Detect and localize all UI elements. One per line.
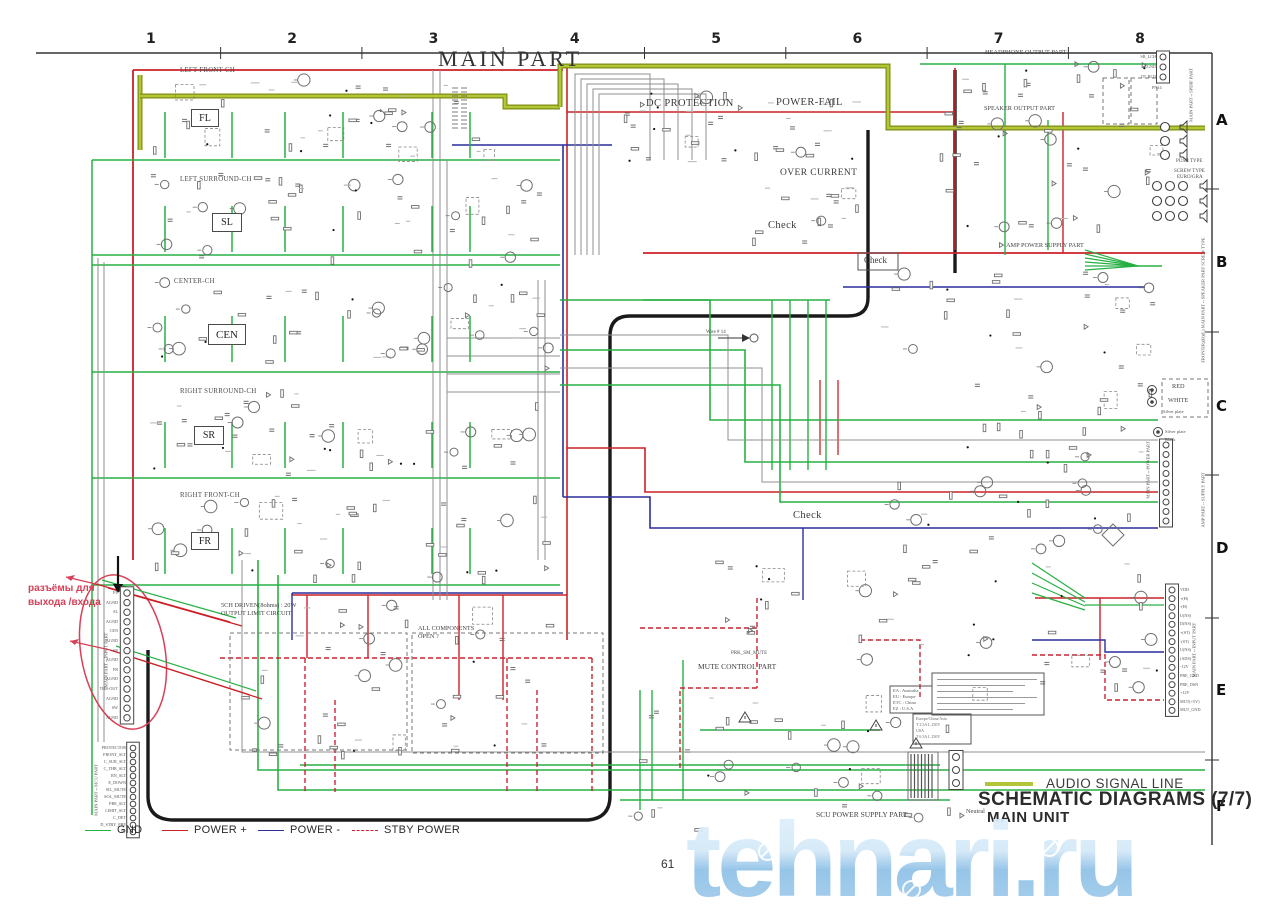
pin-label: THR-OUT xyxy=(100,687,118,691)
grid-column-label: 3 xyxy=(429,31,439,47)
labels-layer: 12345678ABCDEFMAIN PARTLEFT FRONT-CHLEFT… xyxy=(0,0,1280,905)
pin-label: E_DOWN xyxy=(108,781,126,785)
pin-label: PRE_DSN xyxy=(1180,683,1198,687)
pin-label: U(NS) xyxy=(1180,614,1191,618)
pin-label: AGND xyxy=(106,658,118,662)
grid-row-label: E xyxy=(1216,681,1226,699)
pin-label: FRONT_SLT xyxy=(103,753,126,757)
pin-label: PRE_GND xyxy=(1180,674,1199,678)
pin-label: PROTECTOR xyxy=(102,746,126,750)
label-black: Black xyxy=(1165,438,1176,443)
legend-power-plus-line-sample xyxy=(162,830,188,831)
page-number: 61 xyxy=(661,857,674,871)
pin-label: LIMIT_SLT xyxy=(105,809,126,813)
label-allcomp-2: OPEN ? xyxy=(418,634,439,640)
watermark-slash-icon xyxy=(758,842,777,861)
legend-power-minus-label: POWER - xyxy=(290,824,340,836)
grid-row-label: A xyxy=(1216,111,1228,129)
label-check-2: Check xyxy=(864,256,887,265)
pin-label: RN_SLT xyxy=(111,774,126,778)
label-limit-1: 5CH DRIVEN(8ohms) : 20W xyxy=(221,603,296,609)
pin-label: AGND xyxy=(106,639,118,643)
pin-label: AGND xyxy=(106,697,118,701)
label-headphone-part: HEADPHONE OUTPUT PART xyxy=(985,50,1067,56)
grid-column-label: 1 xyxy=(146,31,156,47)
watermark-slash-icon xyxy=(1196,880,1215,899)
vlabel-mcu: MAIN PART↔MCU PART xyxy=(94,764,99,816)
legend-gnd: GND xyxy=(85,824,142,836)
main-part-title: MAIN PART xyxy=(438,46,582,72)
watermark-slash-icon xyxy=(902,880,921,899)
pin-label: AGND xyxy=(106,677,118,681)
pin-label: +(H) xyxy=(1180,597,1188,601)
vlabel-power-right: MAIN PART↔POWER PART xyxy=(1146,441,1151,498)
pin-label: FL xyxy=(113,591,118,595)
pin-label: SR_LCH xyxy=(1140,55,1156,59)
legend-power-plus-label: POWER + xyxy=(194,824,247,836)
annotation-ru-1: разъёмы для xyxy=(28,583,95,594)
channel-header-sr: RIGHT SURROUND-CH xyxy=(180,389,257,396)
pin-label: CEN xyxy=(110,629,118,633)
channel-header-fl: LEFT FRONT-CH xyxy=(180,68,235,75)
label-amp-supply-part: AMP POWER SUPPLY PART xyxy=(1006,243,1084,249)
legend-gnd-label: GND xyxy=(117,824,142,836)
pin-label: TP_RLD xyxy=(1141,75,1156,79)
label-silver-2: Silver plate xyxy=(1165,430,1186,435)
fuse-line-2: USA xyxy=(916,729,924,733)
label-screw-sub: EURO/GRA xyxy=(1177,175,1203,180)
fuse-title: Europe/China/Asia xyxy=(916,717,947,721)
pin-label: -12V xyxy=(1180,665,1189,669)
legend-power-plus: POWER + xyxy=(162,824,247,836)
vlabel-spdif: MAIN PART↔SPDIF PART xyxy=(1189,68,1194,122)
legend-stby: STBY POWER xyxy=(352,824,460,836)
pin-label: +12V xyxy=(1180,691,1190,695)
grid-column-label: 6 xyxy=(853,31,863,47)
vlabel-speaker: FRONT(R)(B)(L) MAIN PART↔SPEAKER PART SC… xyxy=(1201,237,1206,362)
channel-header-fr: RIGHT FRONT-CH xyxy=(180,493,240,500)
fuse-line-1: T 2.5A L 250V xyxy=(916,723,940,727)
grid-column-label: 8 xyxy=(1135,31,1145,47)
label-limit-2: OUTPUT LIMIT CIRCUIT xyxy=(221,611,291,617)
pin-label: SR xyxy=(113,649,118,653)
vlabel-input-right: MAIN PART↔INPUT PART xyxy=(1192,623,1197,678)
grid-column-label: 5 xyxy=(711,31,721,47)
label-over-current: OVER CURRENT xyxy=(780,169,857,179)
pin-label: (ADS) xyxy=(1180,657,1191,661)
pin-label: PRE_SLT xyxy=(109,802,126,806)
label-mute-part: MUTE CONTROL PART xyxy=(698,663,776,671)
region-code-2: ETC : China xyxy=(893,701,916,706)
legend-stby-line-sample xyxy=(352,830,378,831)
channel-tag-box: FL xyxy=(191,109,219,127)
legend-gnd-line-sample xyxy=(85,830,111,831)
grid-column-label: 2 xyxy=(287,31,297,47)
channel-tag-box: SR xyxy=(194,426,224,445)
pin-label: VDD xyxy=(1180,588,1189,592)
channel-tag-box: CEN xyxy=(208,324,246,345)
label-check-1: Check xyxy=(768,221,797,232)
fuse-line-3: T 6.3A L 250V xyxy=(916,735,940,739)
label-prk-mute: PRK_SM_MUTE xyxy=(731,651,767,656)
pin-label: AGND xyxy=(106,620,118,624)
audio-line-sample xyxy=(985,782,1033,786)
grid-row-label: B xyxy=(1216,253,1227,271)
vlabel-amp-right: AMP PART↔SUPPLY PART xyxy=(1201,472,1206,527)
schematic-page: 12345678ABCDEFMAIN PARTLEFT FRONT-CHLEFT… xyxy=(0,0,1280,905)
label-check-3: Check xyxy=(793,511,822,522)
pin-label: SOL_MUTE xyxy=(104,795,126,799)
pin-label: -(ST) xyxy=(1180,640,1189,644)
channel-header-sl: LEFT SURROUND-CH xyxy=(180,177,252,184)
pin-label: SL xyxy=(113,610,118,614)
grid-column-label: 4 xyxy=(570,31,580,47)
pin-label: U(NS) xyxy=(1180,648,1191,652)
label-wire14: Wire # 14 xyxy=(706,330,726,335)
legend-stby-label: STBY POWER xyxy=(384,824,460,836)
pin-label: SIL_MUTE xyxy=(106,788,126,792)
grid-row-label: D xyxy=(1216,539,1228,557)
pin-label: FR xyxy=(113,668,118,672)
channel-tag-box: FR xyxy=(191,532,219,550)
headphone-connector-tag: PN14 xyxy=(1152,86,1162,90)
pin-label: AGND xyxy=(106,601,118,605)
label-allcomp-1: ALL COMPONENTS xyxy=(418,626,474,632)
pin-label: C_THR_SLT xyxy=(104,767,126,771)
pin-label: MUT(+5V) xyxy=(1180,700,1200,704)
annotation-ru-2: выхода /входа xyxy=(28,597,101,608)
pin-label: AGND xyxy=(1144,65,1156,69)
label-dc-protection: DC PROTECTION xyxy=(646,99,734,110)
label-power-fail: POWER-FAIL xyxy=(776,98,843,109)
label-white: WHITE xyxy=(1168,398,1188,404)
label-speaker-part: SPEAKER OUTPUT PART xyxy=(984,106,1055,112)
label-screw-type: SCREW TYPE xyxy=(1174,169,1205,174)
pin-label: MUT_GND xyxy=(1180,708,1200,712)
grid-row-label: C xyxy=(1216,397,1227,415)
pin-label: SW xyxy=(112,706,118,710)
channel-header-cen: CENTER-CH xyxy=(174,279,215,286)
legend-power-minus: POWER - xyxy=(258,824,340,836)
pin-label: -(H) xyxy=(1180,605,1187,609)
region-code-1: EU : Europe xyxy=(893,695,916,700)
label-silver-1: Silver plate xyxy=(1163,410,1184,415)
grid-column-label: 7 xyxy=(994,31,1004,47)
pin-label: AGND xyxy=(106,716,118,720)
region-code-0: EA : Australia xyxy=(893,689,919,694)
pin-label: C_SUR_SLT xyxy=(104,760,126,764)
region-code-3: EZ : U.S.A xyxy=(893,707,913,712)
label-push-type: PUSH TYPE xyxy=(1176,159,1202,164)
label-red: RED xyxy=(1172,384,1185,390)
pin-label: C_DET xyxy=(113,816,126,820)
legend-power-minus-line-sample xyxy=(258,830,284,831)
channel-tag-box: SL xyxy=(212,213,242,232)
pin-label: D(NS) xyxy=(1180,622,1191,626)
watermark-slash-icon xyxy=(1040,838,1059,857)
pin-label: +(ST) xyxy=(1180,631,1190,635)
